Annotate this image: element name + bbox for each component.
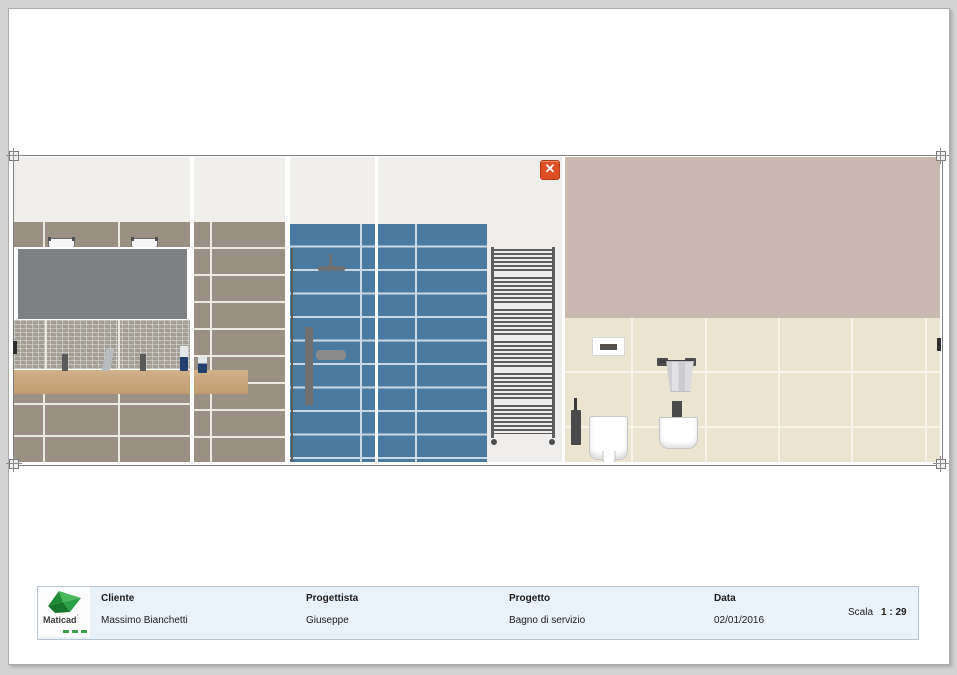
field-value: Giuseppe [306, 615, 349, 626]
field-label: Cliente [101, 593, 134, 604]
maticad-logo: Maticad’ [38, 587, 90, 637]
logo-trademark: ’ [77, 615, 79, 621]
resize-handle-right[interactable] [937, 338, 941, 351]
resize-handle-bottom-left[interactable] [9, 459, 19, 469]
close-icon[interactable]: ✕ [540, 160, 560, 180]
resize-handle-left[interactable] [13, 341, 17, 354]
elevation-viewport[interactable] [13, 155, 943, 466]
field-value: Bagno di servizio [509, 615, 585, 626]
field-label: Data [714, 593, 736, 604]
logo-underline [63, 630, 89, 633]
field-label: Progetto [509, 593, 550, 604]
maticad-logo-icon [45, 589, 89, 615]
title-block: Maticad’ Cliente Massimo Bianchetti Prog… [37, 586, 919, 640]
resize-handle-top-left[interactable] [9, 151, 19, 161]
field-label: Progettista [306, 593, 358, 604]
field-value: Massimo Bianchetti [101, 615, 188, 626]
resize-handle-top-right[interactable] [936, 151, 946, 161]
scale-value: 1 : 29 [881, 607, 907, 618]
scale-indicator: Scala1 : 29 [848, 607, 907, 618]
logo-text: Maticad’ [43, 615, 78, 625]
field-value: 02/01/2016 [714, 615, 764, 626]
maticad-canvas: ✕ Maticad’ Cliente Massimo Bianchetti Pr… [0, 0, 957, 675]
resize-handle-bottom-right[interactable] [936, 459, 946, 469]
